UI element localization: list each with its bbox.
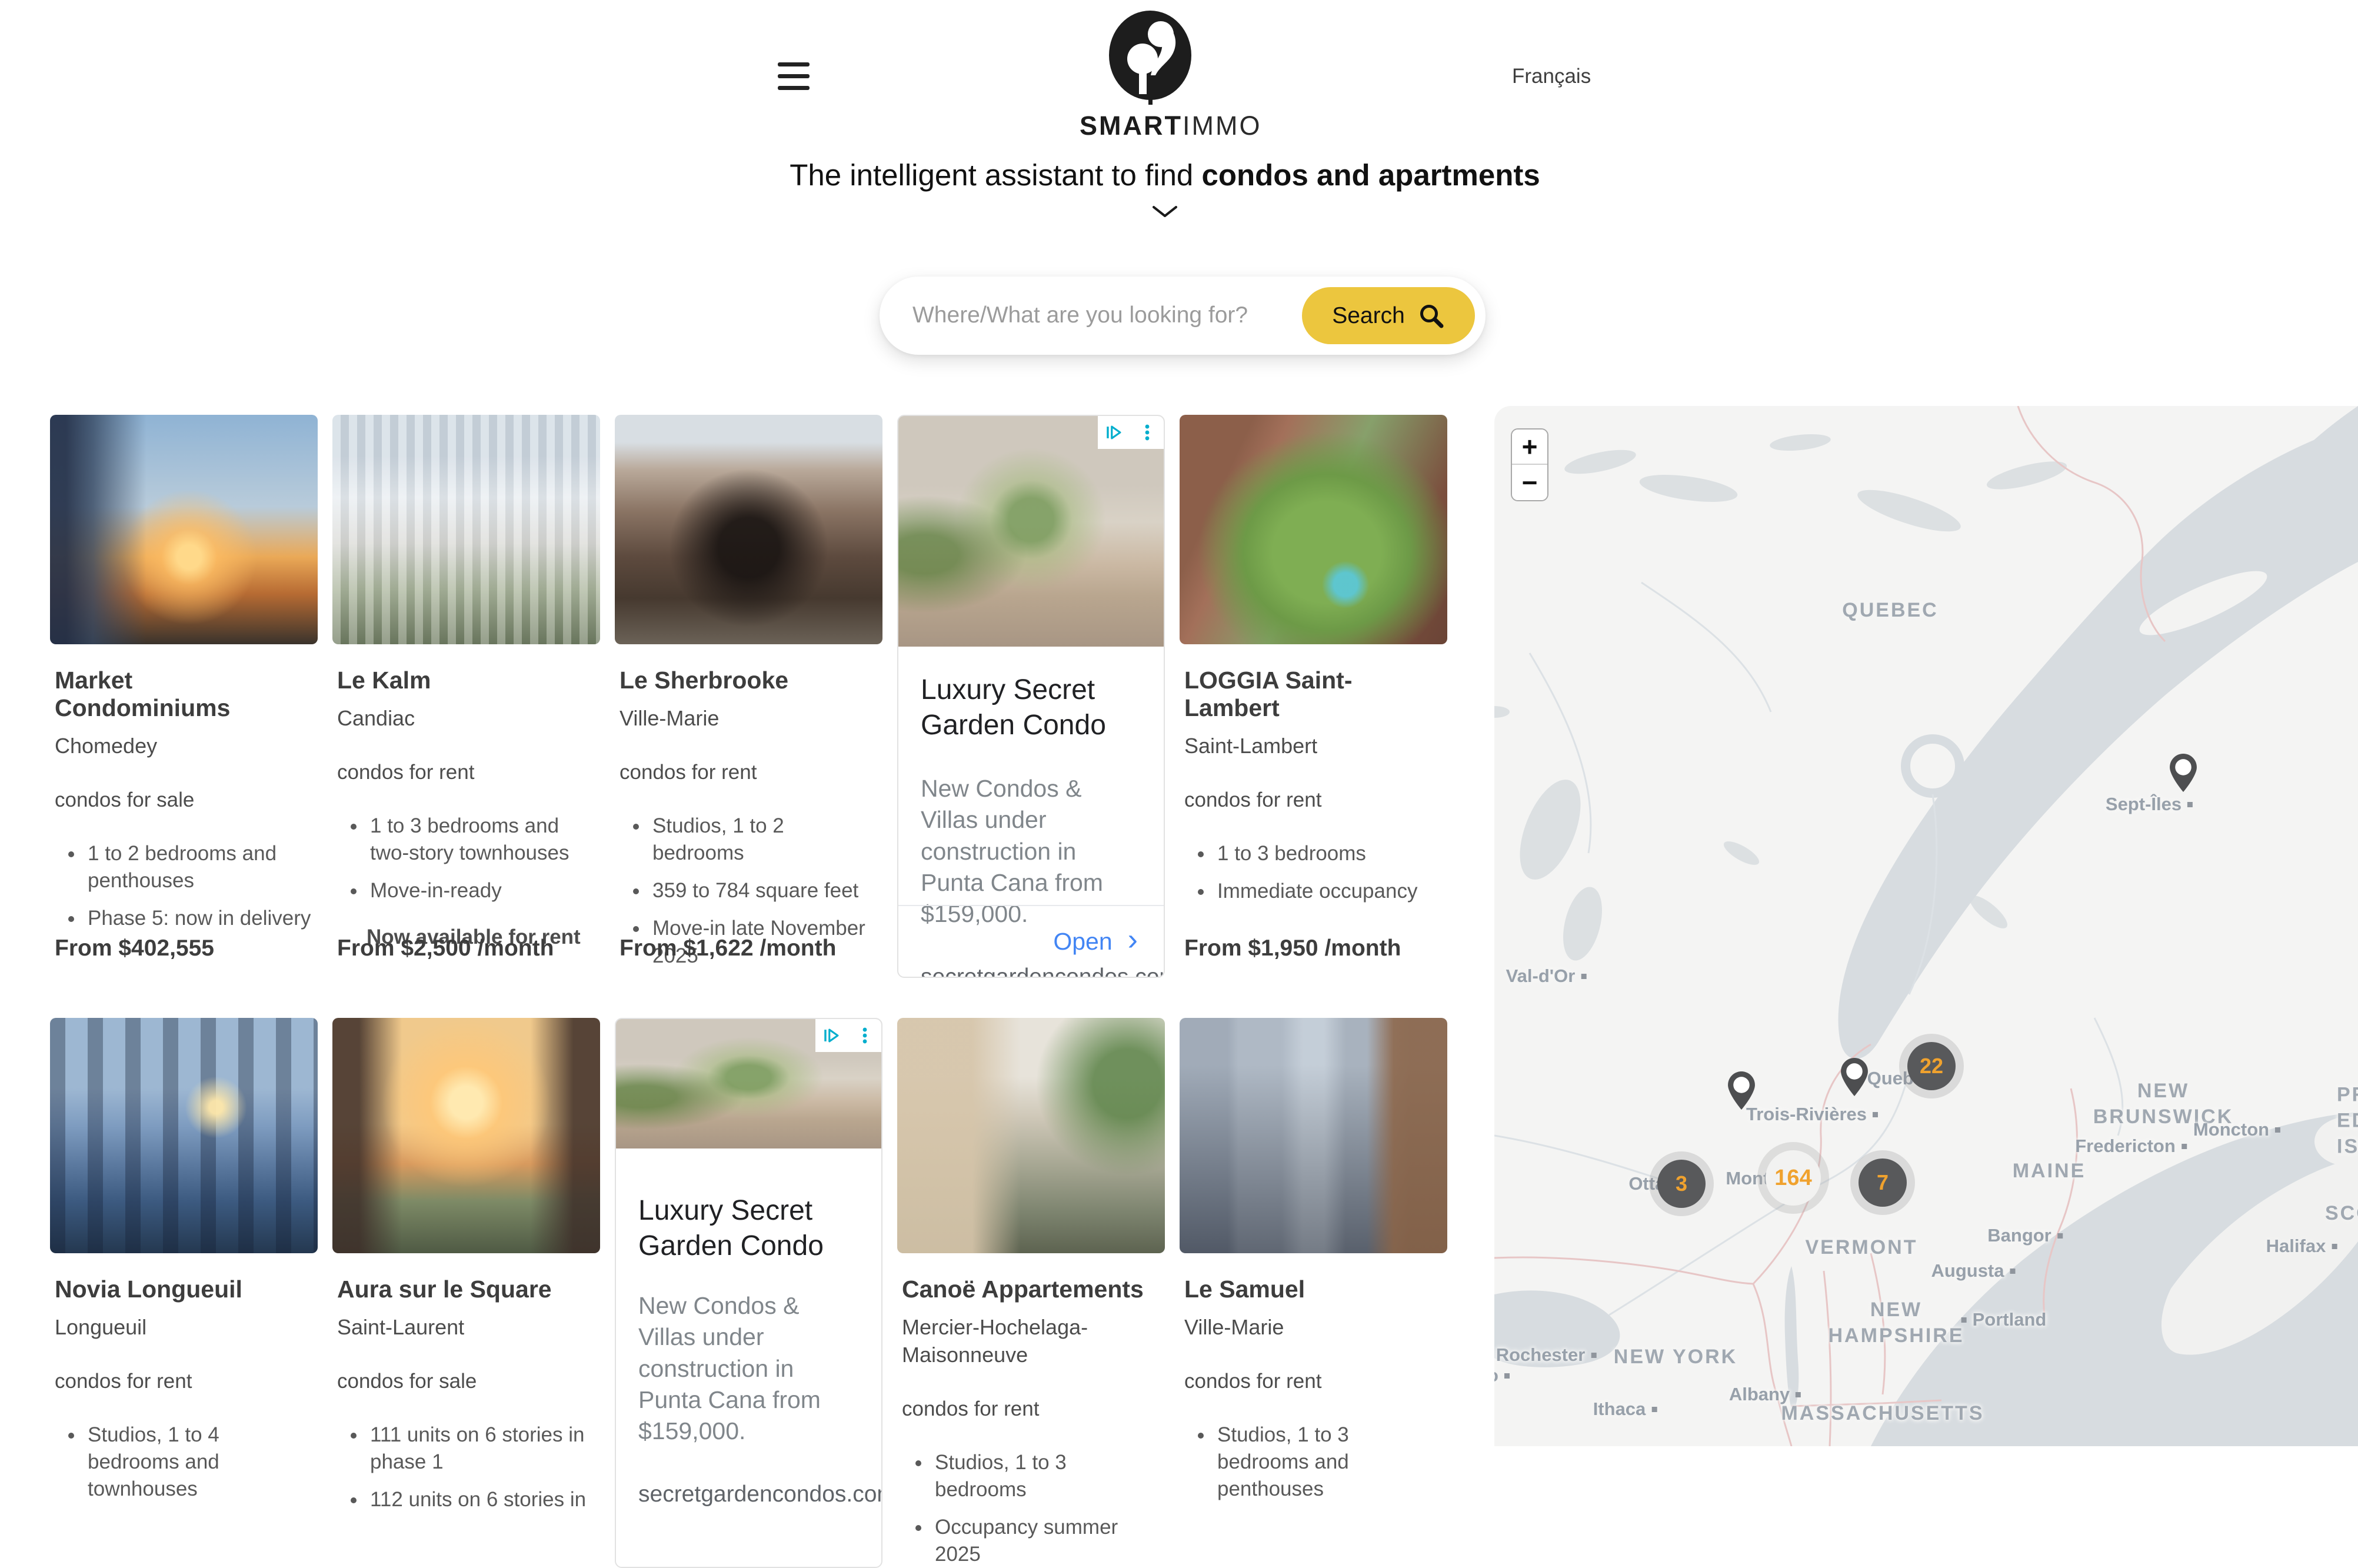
map-city-name: Rochester [1496, 1344, 1586, 1366]
hero: The intelligent assistant to find condos… [0, 158, 2330, 221]
chevron-right-icon: › [1128, 924, 1138, 955]
ad-photo [616, 1019, 881, 1148]
search-icon [1418, 302, 1445, 329]
map-region-label: PRINCEEDWARDISLAND [2337, 1082, 2358, 1160]
map-city-dot [2187, 802, 2193, 807]
map-city-label: Ithaca [1593, 1399, 1657, 1420]
property-feature: 359 to 784 square feet [649, 877, 879, 904]
property-name[interactable]: Novia Longueuil [55, 1276, 314, 1303]
property-feature-list: Studios, 1 to 3 bedroomsOccupancy summer… [902, 1449, 1161, 1568]
map-city-dot [2182, 1144, 2187, 1149]
logo-word-light: IMMO [1183, 111, 1261, 141]
search-button[interactable]: Search [1302, 287, 1475, 344]
property-location: Chomedey [55, 733, 314, 760]
ad-footer: Open› [898, 905, 1164, 977]
search-bar: Search [880, 277, 1486, 355]
property-name[interactable]: Canoë Appartements [902, 1276, 1161, 1303]
adchoices-icon[interactable] [815, 1019, 848, 1052]
property-feature-list: Studios, 1 to 3 bedrooms and penthouses [1184, 1421, 1444, 1503]
map-city-label: Val-d'Or [1506, 966, 1587, 987]
property-feature: 112 units on 6 stories in [367, 1486, 597, 1513]
smartimmo-logo-icon [1104, 9, 1197, 105]
property-body: Le KalmCandiaccondos for rent1 to 3 bedr… [332, 667, 600, 949]
property-feature: Studios, 1 to 4 bedrooms and townhouses [84, 1421, 314, 1503]
property-listing-type: condos for rent [337, 761, 597, 784]
map-city-label: Portland [1961, 1309, 2047, 1330]
map-water [1494, 406, 2358, 1446]
map-region-label: QUEBEC [1842, 597, 1938, 623]
property-price: From $2,500 /month [337, 936, 554, 961]
property-card[interactable]: Le KalmCandiaccondos for rent1 to 3 bedr… [332, 415, 600, 978]
property-listing-type: condos for rent [1184, 788, 1444, 812]
map-city-name: Buffalo [1494, 1365, 1498, 1386]
property-feature: 1 to 3 bedrooms and two-story townhouses [367, 813, 597, 867]
property-body: Le SamuelVille-Mariecondos for rentStudi… [1180, 1276, 1447, 1503]
hamburger-bar [778, 86, 810, 90]
property-name[interactable]: Le Samuel [1184, 1276, 1444, 1303]
property-price: From $1,950 /month [1184, 936, 1401, 961]
map-city-name: Portland [1973, 1309, 2047, 1330]
map-cluster-marker[interactable]: 7 [1859, 1158, 1907, 1207]
property-body: LOGGIA Saint-LambertSaint-Lambertcondos … [1180, 667, 1447, 905]
property-feature: 111 units on 6 stories in phase 1 [367, 1421, 597, 1476]
ad-open-link[interactable]: Open› [1053, 926, 1138, 957]
property-feature: Studios, 1 to 3 bedrooms [931, 1449, 1161, 1503]
property-feature-list: 1 to 3 bedrooms and two-story townhouses… [337, 813, 597, 905]
property-location: Ville-Marie [620, 705, 879, 733]
property-card[interactable]: Canoë AppartementsMercier-Hochelaga-Mais… [897, 1018, 1165, 1568]
map-city-label: Fredericton [2075, 1136, 2187, 1157]
listings-grid: Market CondominiumsChomedeycondos for sa… [50, 415, 1447, 1568]
map-region-label-line: NEW [1828, 1297, 1964, 1323]
property-photo [50, 1018, 318, 1253]
property-name[interactable]: Le Sherbrooke [620, 667, 879, 694]
property-feature: Studios, 1 to 2 bedrooms [649, 813, 879, 867]
rooster-keyhole-icon [1104, 9, 1197, 105]
map-city-label: Augusta [1931, 1260, 2016, 1281]
property-price: From $1,622 /month [620, 936, 836, 961]
smartimmo-logo[interactable]: SMARTIMMO [1080, 9, 1221, 141]
map-city-label: Buffalo [1494, 1365, 1510, 1386]
property-listing-type: condos for sale [55, 788, 314, 812]
ad-heading[interactable]: Luxury Secret Garden Condo [921, 673, 1143, 743]
scroll-chevron-down-icon[interactable] [0, 205, 2330, 221]
map-city-label: Rochester [1496, 1344, 1597, 1366]
map-region-label: NEW YORK [1614, 1344, 1737, 1370]
ad-body: Luxury Secret Garden CondoNew Condos & V… [616, 1148, 881, 1507]
map-cluster-marker[interactable]: 164 [1766, 1150, 1821, 1206]
property-card[interactable]: Le SamuelVille-Mariecondos for rentStudi… [1180, 1018, 1447, 1568]
map-city-name: Halifax [2266, 1236, 2326, 1257]
property-feature: Occupancy summer 2025 [931, 1514, 1161, 1568]
ad-menu-dots-icon[interactable] [848, 1019, 881, 1052]
map-city-dot [1581, 974, 1586, 979]
hamburger-bar [778, 62, 810, 66]
property-location: Candiac [337, 705, 597, 733]
property-listing-type: condos for rent [55, 1370, 314, 1393]
map-city-dot [1961, 1317, 1967, 1323]
property-feature-list: Studios, 1 to 4 bedrooms and townhouses [55, 1421, 314, 1503]
property-listing-type: condos for rent [620, 761, 879, 784]
map-region-label-line: NEW [2093, 1078, 2234, 1104]
ad-badges [1098, 416, 1164, 449]
map-city-dot [2275, 1127, 2280, 1133]
property-feature: Studios, 1 to 3 bedrooms and penthouses [1214, 1421, 1444, 1503]
property-card[interactable]: Le SherbrookeVille-Mariecondos for rentS… [615, 415, 882, 978]
map-region-label: VERMONT [1806, 1234, 1918, 1260]
map-city-dot [2010, 1269, 2016, 1274]
property-photo [897, 1018, 1165, 1253]
map-city-dot [1796, 1392, 1801, 1397]
property-body: Novia LongueuilLongueuilcondos for rentS… [50, 1276, 318, 1503]
property-location: Longueuil [55, 1314, 314, 1341]
logo-wordmark: SMARTIMMO [1080, 111, 1221, 141]
map-city-name: Val-d'Or [1506, 966, 1576, 987]
property-photo [1180, 415, 1447, 644]
search-button-label: Search [1332, 303, 1405, 329]
map-city-dot [1873, 1112, 1878, 1117]
property-price: From $402,555 [55, 936, 214, 961]
property-feature: 1 to 2 bedrooms and penthouses [84, 840, 314, 894]
property-location: Ville-Marie [1184, 1314, 1444, 1341]
zoom-in-button[interactable]: + [1512, 430, 1547, 465]
map-city-name: Ithaca [1593, 1399, 1646, 1420]
map-region-label-line: PRINCE [2337, 1082, 2358, 1108]
ad-domain: secretgardencondos.com [638, 1482, 860, 1507]
property-body: Market CondominiumsChomedeycondos for sa… [50, 667, 318, 932]
map-region-label-line: MAINE [2013, 1158, 2086, 1184]
property-body: Aura sur le SquareSaint-Laurentcondos fo… [332, 1276, 600, 1513]
map-pin-icon[interactable] [1728, 1071, 1755, 1113]
language-switch-link[interactable]: Français [1512, 65, 1591, 88]
map-region-label-line: VERMONT [1806, 1234, 1918, 1260]
map-city-label: Halifax [2266, 1236, 2337, 1257]
property-listing-type: condos for rent [1184, 1370, 1444, 1393]
logo-word-bold: SMART [1080, 111, 1183, 141]
menu-hamburger-icon[interactable] [778, 62, 810, 91]
property-listing-type: condos for rent [902, 1397, 1161, 1421]
map-region-label-line: SCOTIA [2325, 1200, 2358, 1226]
page-title-regular: The intelligent assistant to find [790, 158, 1201, 192]
map-region-label-line: HAMPSHIRE [1828, 1323, 1964, 1349]
page-title-bold: condos and apartments [1201, 158, 1540, 192]
map-city-label: Albany [1729, 1384, 1801, 1405]
ad-open-label: Open [1053, 928, 1112, 956]
map-city-name: Moncton [2193, 1119, 2269, 1140]
ad-card[interactable]: Luxury Secret Garden CondoNew Condos & V… [615, 1018, 882, 1568]
map-city-dot [1591, 1353, 1596, 1358]
map-city-name: Albany [1729, 1384, 1790, 1405]
property-card[interactable]: LOGGIA Saint-LambertSaint-Lambertcondos … [1180, 415, 1447, 978]
map-cluster-marker[interactable]: 3 [1657, 1160, 1706, 1208]
map-zoom-controls: + − [1511, 428, 1548, 501]
ad-description: New Condos & Villas under construction i… [638, 1290, 860, 1447]
property-feature: 1 to 3 bedrooms [1214, 840, 1444, 867]
map-region-label-line: EDWARD [2337, 1108, 2358, 1134]
page-title: The intelligent assistant to find condos… [0, 158, 2330, 192]
map-city-dot [2332, 1244, 2337, 1249]
property-card[interactable]: Market CondominiumsChomedeycondos for sa… [50, 415, 318, 978]
adchoices-icon[interactable] [1098, 416, 1131, 449]
property-photo [1180, 1018, 1447, 1253]
property-feature: Phase 5: now in delivery [84, 905, 314, 932]
map-region-label-line: MASSACHUSETTS [1781, 1400, 1984, 1426]
property-name[interactable]: Aura sur le Square [337, 1276, 597, 1303]
map-region-label: MASSACHUSETTS [1781, 1400, 1984, 1426]
property-name[interactable]: LOGGIA Saint-Lambert [1184, 667, 1444, 722]
property-name[interactable]: Le Kalm [337, 667, 597, 694]
property-feature-list: 1 to 3 bedroomsImmediate occupancy [1184, 840, 1444, 905]
property-body: Canoë AppartementsMercier-Hochelaga-Mais… [897, 1276, 1165, 1568]
map-region-label: MAINE [2013, 1158, 2086, 1184]
property-location: Mercier-Hochelaga-Maisonneuve [902, 1314, 1161, 1369]
map-city-label: Trois-Rivières [1746, 1104, 1878, 1125]
map-pin-icon[interactable] [2170, 754, 2197, 795]
map-canvas[interactable]: + − QUEBECNEWBRUNSWICKMAINEVERMONTNEWHAM… [1494, 406, 2358, 1446]
property-photo [332, 415, 600, 644]
ad-menu-dots-icon[interactable] [1131, 416, 1164, 449]
map-city-label: Moncton [2193, 1119, 2280, 1140]
property-listing-type: condos for sale [337, 1370, 597, 1393]
ad-card[interactable]: Luxury Secret Garden CondoNew Condos & V… [897, 415, 1165, 978]
property-feature: Move-in-ready [367, 877, 597, 904]
property-photo [332, 1018, 600, 1253]
property-name[interactable]: Market Condominiums [55, 667, 314, 722]
property-feature: Immediate occupancy [1214, 878, 1444, 905]
property-location: Saint-Lambert [1184, 733, 1444, 760]
map-region-label: NEWHAMPSHIRE [1828, 1297, 1964, 1349]
map-city-name: Fredericton [2075, 1136, 2176, 1157]
search-input[interactable] [912, 291, 1277, 340]
property-photo [50, 415, 318, 644]
map-city-dot [1651, 1407, 1657, 1412]
map-city-name: Trois-Rivières [1746, 1104, 1867, 1125]
property-photo [615, 415, 882, 644]
zoom-out-button[interactable]: − [1512, 465, 1547, 500]
map-city-name: Sept-Îles [2106, 794, 2182, 815]
property-card[interactable]: Novia LongueuilLongueuilcondos for rentS… [50, 1018, 318, 1568]
ad-photo [898, 416, 1164, 647]
ad-badges [815, 1019, 881, 1052]
map-city-dot [2057, 1233, 2063, 1239]
ad-heading[interactable]: Luxury Secret Garden Condo [638, 1193, 860, 1263]
property-body: Le SherbrookeVille-Mariecondos for rentS… [615, 667, 882, 970]
map-region-label-line: ISLAND [2337, 1134, 2358, 1160]
property-feature-list: 1 to 2 bedrooms and penthousesPhase 5: n… [55, 840, 314, 933]
map-region-label: SCOTIA [2325, 1200, 2358, 1226]
map-city-name: Augusta [1931, 1260, 2004, 1281]
map-city-name: Bangor [1987, 1225, 2051, 1246]
property-location: Saint-Laurent [337, 1314, 597, 1341]
map-region-label-line: QUEBEC [1842, 597, 1938, 623]
map-city-label: Bangor [1987, 1225, 2063, 1246]
map-pin-icon[interactable] [1841, 1058, 1868, 1099]
property-card[interactable]: Aura sur le SquareSaint-Laurentcondos fo… [332, 1018, 600, 1568]
map-cluster-marker[interactable]: 22 [1907, 1042, 1956, 1090]
property-feature-list: 111 units on 6 stories in phase 1112 uni… [337, 1421, 597, 1514]
map-city-dot [1504, 1373, 1510, 1379]
map-region-label-line: NEW YORK [1614, 1344, 1737, 1370]
hamburger-bar [778, 74, 810, 78]
map-city-label: Sept-Îles [2106, 794, 2193, 815]
